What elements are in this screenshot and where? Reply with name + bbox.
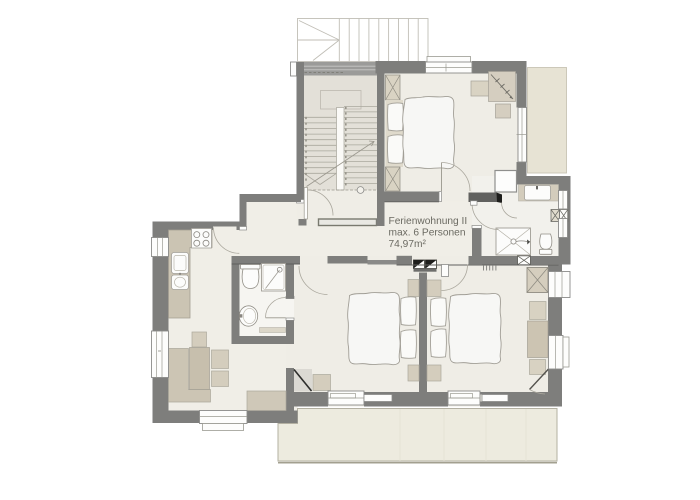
svg-text:max. 6 Personen: max. 6 Personen [389,227,466,238]
svg-text:Ferienwohnung II: Ferienwohnung II [389,216,468,227]
svg-text:74,97m²: 74,97m² [389,239,427,250]
